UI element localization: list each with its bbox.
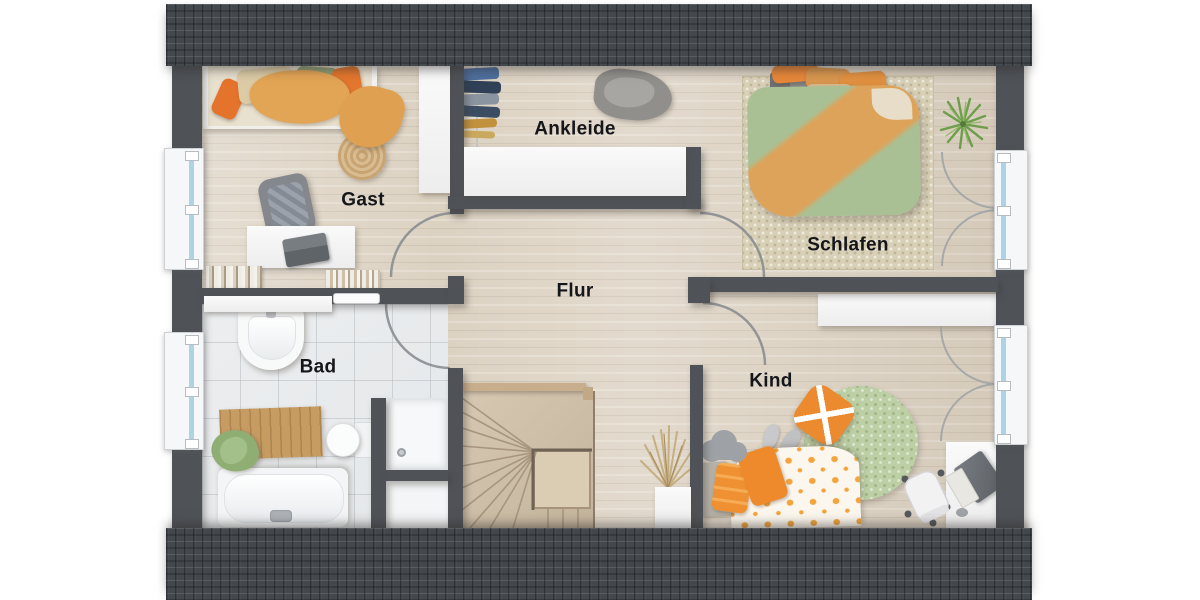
room-label-gast: Gast [341, 191, 384, 212]
window-handle [185, 439, 199, 449]
schlafen-window-arc-bottom [942, 210, 998, 266]
room-label-ankleide: Ankleide [534, 120, 616, 141]
window-handle [185, 335, 199, 345]
wall-flur-kind [690, 365, 703, 528]
wall-gast-bottom-post [448, 276, 464, 304]
kind-window-arc-top [941, 327, 998, 384]
kind-door-arc [703, 303, 765, 365]
window-handle [185, 259, 199, 269]
schlafen-door-arc [700, 213, 764, 277]
gast-door-arc [391, 213, 455, 277]
schlafen-window [994, 150, 1028, 270]
kind-window-arc-bottom [941, 384, 998, 441]
dried-plant [641, 426, 694, 488]
room-label-bad: Bad [300, 358, 337, 379]
window-handle [997, 381, 1011, 391]
bad-vanity-shelf [204, 296, 332, 312]
flur-planter [655, 487, 691, 528]
window-handle [997, 328, 1011, 338]
kind-desk-chair [901, 468, 952, 526]
window-handle [185, 205, 199, 215]
stair-void-rim [533, 450, 592, 510]
schlafen-plant [941, 98, 987, 148]
window-handle [997, 153, 1011, 163]
room-label-schlafen: Schlafen [807, 236, 889, 257]
window-handle [185, 387, 199, 397]
wall-ankleide-post [686, 147, 701, 209]
bad-door-arc [386, 304, 450, 368]
wall-ankleide-bottom [448, 196, 701, 209]
kind-window [994, 325, 1028, 445]
wall-bad-divider [371, 398, 386, 528]
floor-plan-canvas: Gast Ankleide Schlafen Flur Bad Kind [0, 0, 1200, 600]
schlafen-window-arc-top [942, 152, 998, 208]
roof-overhang-top [166, 4, 1032, 66]
wall-flur-bad [448, 368, 463, 528]
window-handle [997, 259, 1011, 269]
window-handle [185, 151, 199, 161]
wall-kind-top-post [688, 277, 710, 303]
wall-exterior-left [172, 66, 202, 528]
wall-shower-bottom [386, 470, 448, 481]
bad-towel-rail [333, 293, 380, 304]
stair-treads [462, 398, 578, 528]
wall-exterior-right [996, 66, 1024, 528]
kind-cloud-shelf [701, 430, 747, 462]
room-label-flur: Flur [556, 282, 593, 303]
bad-window [164, 332, 204, 450]
gast-window [164, 148, 204, 270]
gast-wardrobe [419, 66, 450, 193]
window-handle [997, 206, 1011, 216]
roof-overhang-bottom [166, 528, 1032, 600]
ankleide-wardrobe [464, 147, 686, 196]
wall-gast-ankleide [450, 66, 464, 214]
wall-kind-top [688, 277, 998, 292]
room-label-kind: Kind [749, 372, 792, 393]
window-handle [997, 434, 1011, 444]
